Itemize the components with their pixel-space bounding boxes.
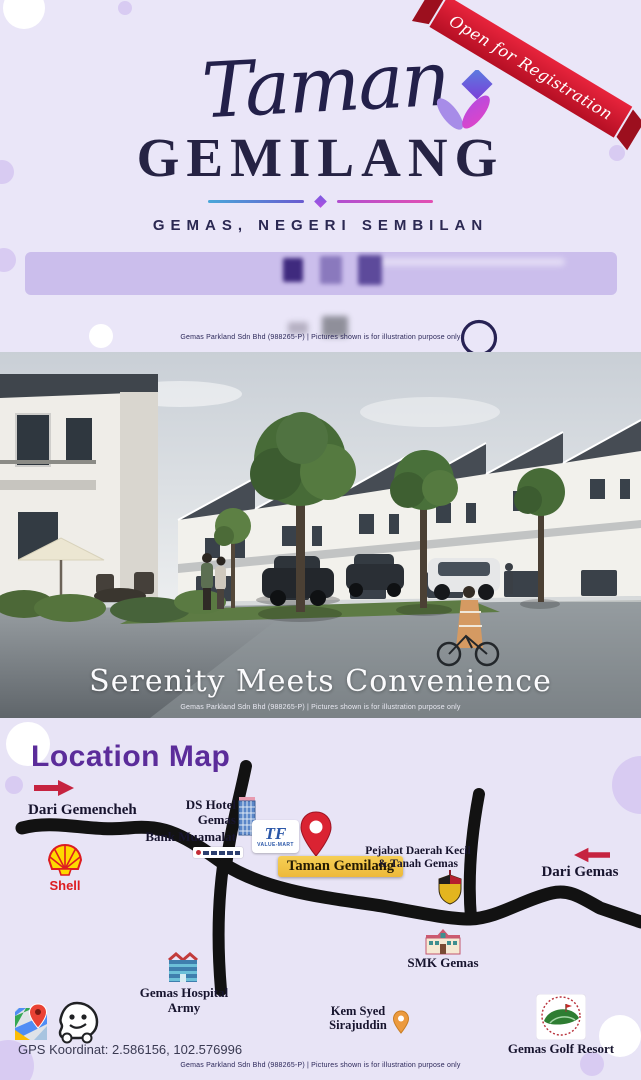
red-map-pin-icon [298, 810, 334, 858]
shell-label: Shell [42, 878, 88, 893]
decorative-dot [3, 0, 45, 29]
bank-muamalat-label: Bank Muamalat [136, 830, 236, 845]
logo-main-title: GEMILANG [0, 126, 641, 189]
hero-section: Taman GEMILANG GEMAS, NEGERI SEMBILAN [0, 0, 641, 352]
from-gemas-label: Dari Gemas [538, 864, 622, 881]
tagline: Serenity Meets Convenience [0, 664, 641, 699]
redacted-info-band [25, 252, 617, 295]
kem-syed-label: Kem Syed Sirajuddin [324, 1004, 392, 1033]
waze-icon [52, 1000, 100, 1046]
logo-divider [0, 197, 641, 206]
map-title: Location Map [31, 740, 230, 774]
state-crest-icon [437, 870, 463, 906]
shell-logo [46, 842, 84, 878]
logo-subtitle: GEMAS, NEGERI SEMBILAN [0, 217, 641, 234]
arrow-right-icon [32, 778, 76, 798]
smk-gemas-label: SMK Gemas [404, 956, 482, 971]
hospital-label: Gemas Hospital Army [134, 986, 234, 1016]
hero-disclaimer: Gemas Parkland Sdn Bhd (988265-P) | Pict… [0, 334, 641, 341]
property-flyer: Taman GEMILANG GEMAS, NEGERI SEMBILAN [0, 0, 641, 1080]
orange-map-pin-icon [392, 1010, 410, 1034]
hospital-icon [164, 948, 202, 986]
gps-coordinates: GPS Koordinat: 2.586156, 102.576996 [18, 1042, 242, 1057]
decorative-dot [0, 248, 16, 272]
diamond-icon [314, 195, 327, 208]
from-gemencheh-label: Dari Gemencheh [28, 802, 137, 819]
ds-hotel-label: DS Hotel Gemas [140, 798, 236, 828]
tf-value-mart-logo: TF VALUE-MART [252, 820, 299, 853]
golf-resort-label: Gemas Golf Resort [498, 1042, 624, 1057]
redacted-block [288, 322, 308, 334]
golf-resort-logo [536, 994, 586, 1040]
flower-logo [420, 70, 500, 136]
school-icon [424, 924, 462, 956]
arrow-left-icon [572, 846, 612, 864]
south-road [219, 866, 223, 990]
showcase-disclaimer: Gemas Parkland Sdn Bhd (988265-P) | Pict… [0, 704, 641, 711]
map-disclaimer: Gemas Parkland Sdn Bhd (988265-P) | Pict… [0, 1062, 641, 1069]
google-maps-icon [14, 1002, 48, 1042]
decorative-dot [118, 1, 132, 15]
logo-script-title: Taman [200, 34, 451, 136]
pejabat-daerah-label: Pejabat Daerah Kecil & Tanah Gemas [364, 845, 472, 871]
showcase-section: Serenity Meets Convenience Gemas Parklan… [0, 352, 641, 718]
location-map-section: Location Map Dari Gemencheh Shell DS Hot… [0, 718, 641, 1080]
bank-muamalat-logo [193, 847, 243, 858]
